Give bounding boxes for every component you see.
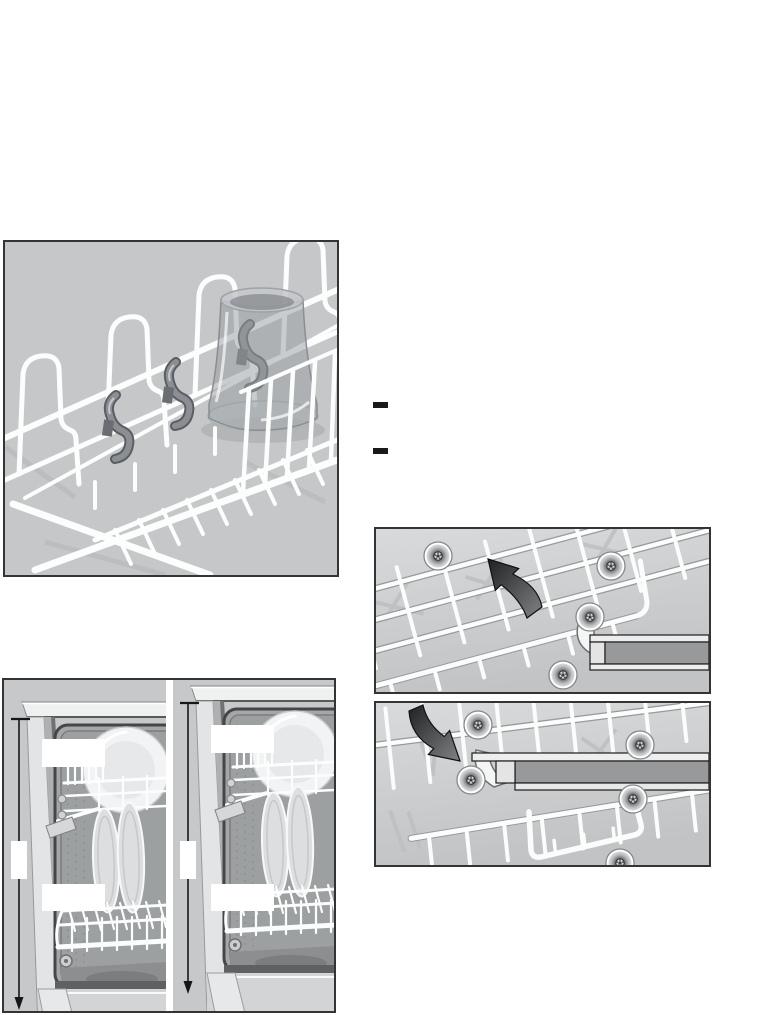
- panel-basket-high: [4, 680, 185, 1011]
- dash-bullet: [373, 448, 388, 454]
- basket-lower-illustration: [376, 703, 709, 865]
- figure-upper-basket-hooks: [3, 240, 339, 577]
- manual-page: [0, 0, 779, 1015]
- roller: [424, 542, 452, 570]
- height-comparison-illustration: [4, 680, 334, 1011]
- figure-basket-lower: [374, 701, 711, 867]
- basket-raise-illustration: [376, 529, 709, 692]
- inverted-glass: [208, 288, 318, 431]
- callout-left-side: [11, 841, 27, 879]
- roller: [549, 661, 577, 689]
- roller: [464, 711, 492, 739]
- figure-height-comparison: [2, 678, 336, 1013]
- callout-right-upper: [211, 725, 274, 753]
- roller: [597, 552, 625, 580]
- roller: [457, 766, 485, 794]
- callout-left-lower: [42, 884, 105, 911]
- upper-basket-illustration: [5, 242, 337, 575]
- callout-right-side: [180, 841, 196, 879]
- roller: [626, 731, 654, 759]
- dash-bullet: [373, 402, 388, 408]
- roller: [619, 785, 647, 813]
- callout-right-lower: [211, 884, 274, 911]
- figure-basket-raise: [374, 527, 711, 694]
- roller: [576, 603, 604, 631]
- callout-left-upper: [42, 739, 105, 767]
